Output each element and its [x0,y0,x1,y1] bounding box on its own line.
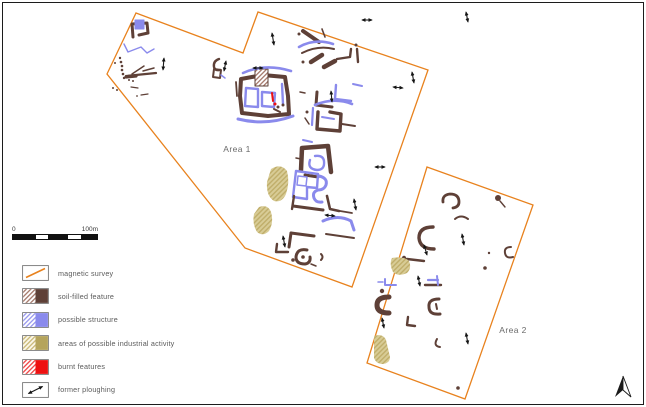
map-feature-soil [136,95,138,97]
legend: magnetic survey soil-filled feature poss… [22,265,174,405]
map-feature-soil [407,259,424,261]
map-feature-soil [122,73,125,76]
map-feature-soil [255,69,268,86]
map-feature-soil [317,112,341,131]
map-feature-soil [293,206,323,210]
map-feature-soil [301,255,305,259]
map-feature-soil [436,304,437,309]
legend-item: magnetic survey [22,265,174,281]
survey-figure: Area 1 Area 2 0 100m magnetic survey soi… [0,0,646,407]
legend-item: possible structure [22,312,174,328]
map-feature-tanHatch [374,335,390,364]
scale-bar-segments [12,234,98,240]
map-feature-soil [132,66,144,74]
map-feature-soil [429,299,440,314]
map-feature-soil [301,146,331,172]
map-feature-structure [353,84,362,86]
map-feature-tanHatch [267,166,288,201]
legend-item: burnt features [22,359,174,375]
area2-survey-boundary [367,167,533,399]
plough-arrow-icon [466,333,468,344]
map-feature-soil [327,196,339,211]
map-feature-soil [274,109,280,112]
map-feature-soil [500,201,505,207]
map-feature-soil [326,234,354,238]
scale-end-label: 100m [82,226,98,233]
map-feature-soil [236,82,237,96]
legend-swatch-icon [22,288,49,304]
map-feature-soil [342,124,355,126]
map-feature-soil [131,87,138,88]
area2-label: Area 2 [499,325,526,335]
map-feature-soil [324,61,335,67]
plough-arrow-icon [325,215,335,216]
map-feature-soil [311,55,322,62]
map-feature-soil [277,106,280,109]
scale-segment [36,235,49,239]
map-feature-soil [276,244,288,252]
map-feature-soil [296,158,301,159]
map-feature-structure [314,176,327,202]
map-feature-structure [245,88,258,107]
map-feature-structure [312,108,313,125]
map-feature-soil [132,80,134,82]
map-feature-soil [311,264,316,266]
map-feature-tanHatch [391,257,410,274]
map-feature-soil [289,233,291,247]
map-feature-soil [305,118,309,124]
scale-segment [81,235,97,239]
map-feature-soil [488,252,490,254]
map-feature-structure [303,140,312,142]
map-feature-structure [385,279,396,285]
map-feature-structure [309,156,324,170]
plough-arrow-icon [466,12,468,22]
map-feature-soil [291,233,314,236]
map-feature-soil [321,254,323,260]
map-feature-soil [114,62,116,64]
legend-swatch-icon [22,359,49,375]
map-feature-soil [306,111,309,114]
map-feature-soil [456,386,460,390]
scale-start-label: 0 [12,226,16,233]
map-feature-soil [357,49,358,62]
map-feature-soil [291,258,295,262]
map-feature-soil [213,69,221,78]
legend-item: areas of possible industrial activity [22,335,174,351]
map-feature-soil [128,79,130,81]
map-feature-soil [112,87,114,89]
map-feature-structure [221,75,225,78]
plough-arrow-icon [163,58,164,70]
plough-arrow-icon [354,199,356,210]
map-feature-soil [120,61,123,64]
map-feature-soil [298,33,301,36]
map-feature-soil [116,89,118,91]
map-feature-soil [126,76,136,77]
map-feature-structure [124,44,154,53]
map-feature-soil [419,227,434,249]
plough-arrow-icon [418,276,420,286]
map-feature-soil [143,68,154,71]
map-feature-soil [443,194,459,208]
map-feature-structure [323,218,354,231]
area1-survey-boundary [107,12,428,287]
plough-arrow-icon [224,61,226,71]
scale-segment [48,235,68,239]
map-feature-soil [505,247,513,258]
map-feature-soil [282,104,285,107]
legend-swatch-icon [22,335,49,351]
map-feature-soil [119,57,121,59]
legend-swatch-icon [22,312,49,328]
map-feature-soil [141,94,148,95]
map-feature-soil [340,211,352,213]
map-feature-soil [337,49,351,59]
map-feature-soil [121,65,124,68]
map-feature-structure [282,84,283,104]
scale-segment [68,235,81,239]
map-feature-soil [436,339,440,347]
plough-arrow-icon [412,72,414,83]
map-feature-soil [355,44,358,47]
map-feature-burnt [272,93,273,101]
map-feature-structure [297,176,307,186]
map-feature-soil [302,48,334,53]
plough-arrow-icon [462,234,464,245]
map-feature-structure [135,20,144,29]
map-feature-burnt [274,103,277,106]
map-feature-structure [299,42,333,47]
scale-segment [13,235,36,239]
map-feature-soil [380,289,384,293]
plough-arrow-icon [382,318,384,328]
map-feature-soil [483,266,487,270]
plough-arrow-icon [393,87,403,88]
scale-bar: 0 100m [12,226,98,240]
legend-swatch-icon [22,265,49,281]
map-feature-soil [455,217,468,220]
legend-item-label: magnetic survey [58,269,113,278]
map-feature-structure [335,85,351,101]
map-feature-structure [322,117,334,119]
legend-item-label: possible structure [58,315,118,324]
legend-item: soil-filled feature [22,288,174,304]
plough-arrow-icon [272,33,274,45]
legend-item-label: burnt features [58,362,105,371]
legend-item-label: areas of possible industrial activity [58,339,174,348]
map-feature-soil [377,297,389,313]
plough-arrow-icon [283,236,285,247]
map-feature-soil [121,69,124,72]
map-feature-soil [495,195,501,201]
legend-item-label: former ploughing [58,385,115,394]
map-feature-soil [302,61,305,64]
legend-item: former ploughing [22,382,174,398]
area1-label: Area 1 [223,144,250,154]
map-feature-soil [322,29,325,37]
map-feature-soil [300,92,305,93]
legend-swatch-icon [22,382,49,398]
legend-item-label: soil-filled feature [58,292,114,301]
north-arrow-icon [615,376,631,397]
map-feature-structure [437,276,438,285]
map-feature-soil [407,317,415,326]
map-feature-tanHatch [253,206,272,234]
